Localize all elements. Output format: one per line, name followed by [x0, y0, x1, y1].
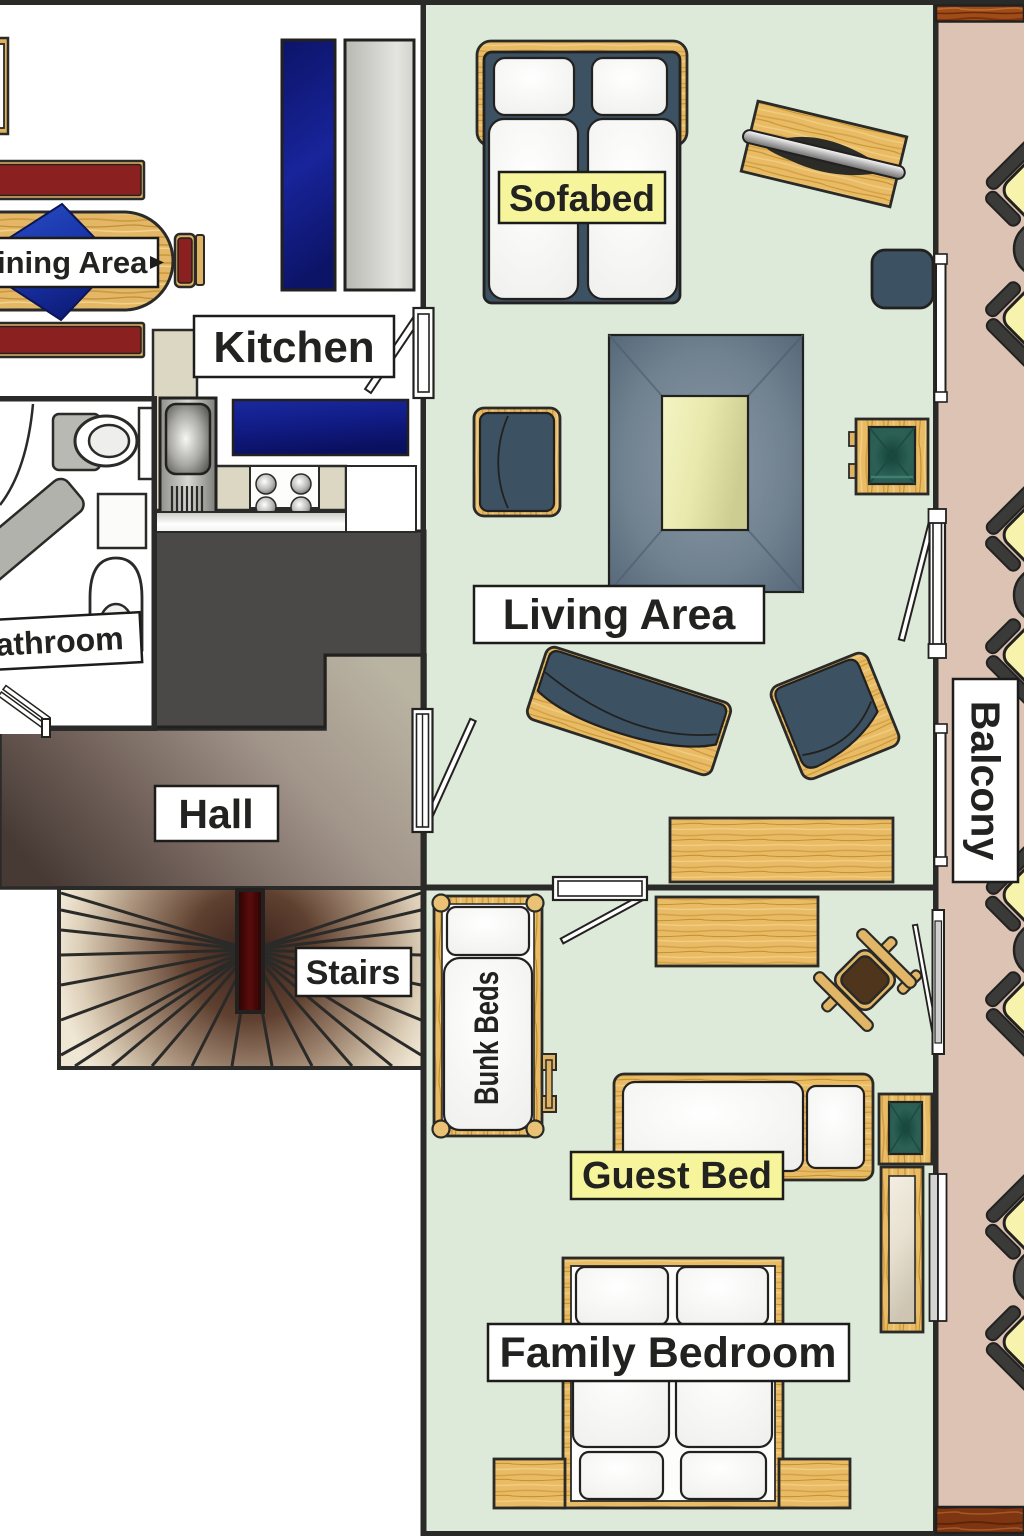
svg-text:Dining Area: Dining Area: [0, 245, 148, 280]
svg-text:Guest Bed: Guest Bed: [582, 1155, 772, 1197]
svg-text:Kitchen: Kitchen: [213, 323, 374, 372]
svg-text:Hall: Hall: [178, 791, 253, 837]
svg-text:Family Bedroom: Family Bedroom: [500, 1329, 837, 1377]
svg-text:Stairs: Stairs: [306, 954, 401, 992]
svg-text:Living Area: Living Area: [503, 591, 737, 639]
svg-text:Balcony: Balcony: [963, 701, 1009, 861]
svg-text:Bunk Beds: Bunk Beds: [468, 971, 506, 1105]
svg-text:Sofabed: Sofabed: [509, 178, 655, 219]
